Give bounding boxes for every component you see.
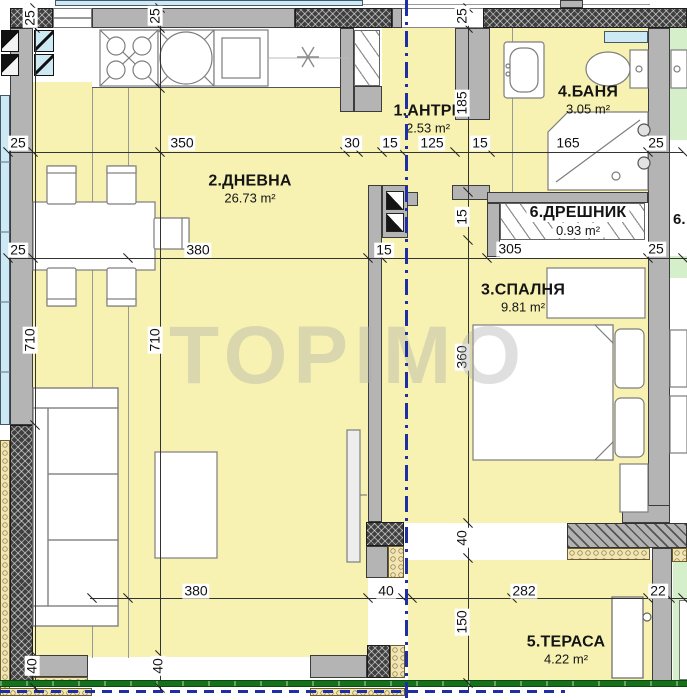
dimension-label: 15 xyxy=(380,136,400,151)
sofa xyxy=(33,388,118,626)
room-label-dreshnik: 6.ДРЕШНИК 0.93 m² xyxy=(524,204,633,240)
dimension-label: 30 xyxy=(342,136,362,151)
shower-cabin xyxy=(548,112,650,190)
dimension-label: 25 xyxy=(8,243,28,258)
freezer-star-icon xyxy=(268,47,350,67)
neighbor-fixtures xyxy=(670,50,687,453)
dimension-label: 150 xyxy=(455,608,470,635)
room-name: 3.СПАЛНЯ xyxy=(481,282,565,300)
dimension-label: 282 xyxy=(510,584,537,599)
floor-plan: TOPIMO 1.АНТРЕ 2.53 m² 2.ДНЕВНА 26.73 m²… xyxy=(0,0,687,700)
section-line-vertical xyxy=(405,0,408,700)
dimension-label: 25 xyxy=(148,6,163,26)
dim-line xyxy=(8,258,687,259)
dimension-label: 40 xyxy=(455,528,470,548)
kitchen-sink xyxy=(158,30,214,86)
tv-unit xyxy=(347,430,367,562)
terrace-door xyxy=(612,597,651,678)
dimension-label: 25 xyxy=(455,6,470,26)
dimension-label: 15 xyxy=(455,207,470,227)
dimension-label: 305 xyxy=(496,242,523,257)
room-area: 3.05 m² xyxy=(558,102,618,117)
fridge xyxy=(214,30,268,86)
room-area: 2.53 m² xyxy=(394,121,463,136)
dimension-label: 40 xyxy=(151,656,166,676)
dimension-label: 25 xyxy=(646,242,666,257)
dimension-label: 15 xyxy=(470,136,490,151)
room-label-banya: 4.БАНЯ 3.05 m² xyxy=(558,84,618,117)
dimension-label: 710 xyxy=(148,326,163,353)
toilet xyxy=(586,50,648,88)
dimension-label: 25 xyxy=(23,8,38,28)
room-name: 6.ДРЕШНИК xyxy=(527,204,630,222)
dimension-label: 380 xyxy=(182,584,209,599)
section-line-horizontal xyxy=(0,690,565,693)
room-name: 5.ТЕРАСА xyxy=(527,634,606,652)
dining-table xyxy=(33,202,155,270)
dimension-label: 710 xyxy=(23,326,38,353)
dimension-label: 165 xyxy=(554,136,581,151)
neighbor-room-label: 6. xyxy=(673,211,686,228)
dimension-label: 22 xyxy=(648,584,668,599)
room-area: 0.93 m² xyxy=(553,223,603,238)
nightstand xyxy=(620,464,648,512)
dimension-label: 25 xyxy=(646,136,666,151)
dimension-label: 350 xyxy=(168,136,195,151)
dimension-label: 125 xyxy=(418,136,445,151)
dimension-label: 380 xyxy=(184,243,211,258)
dimension-label: 40 xyxy=(376,584,396,599)
bath-sink xyxy=(504,42,544,98)
stove xyxy=(100,30,158,86)
room-label-dnevna: 2.ДНЕВНА 26.73 m² xyxy=(208,173,291,206)
room-name: 1.АНТРЕ xyxy=(394,103,463,121)
window-mullions xyxy=(0,162,10,372)
room-area: 4.22 m² xyxy=(527,652,606,667)
room-area: 26.73 m² xyxy=(208,191,291,206)
dimension-label: 40 xyxy=(25,656,40,676)
dimension-label: 185 xyxy=(455,89,470,116)
room-name: 2.ДНЕВНА xyxy=(208,173,291,191)
dimension-label: 15 xyxy=(374,243,394,258)
room-label-antre: 1.АНТРЕ 2.53 m² xyxy=(394,103,463,136)
room-label-terasa: 5.ТЕРАСА 4.22 m² xyxy=(527,634,606,667)
coffee-table xyxy=(155,452,217,558)
watermark: TOPIMO xyxy=(169,309,527,403)
room-name: 4.БАНЯ xyxy=(558,84,618,102)
dimension-label: 25 xyxy=(8,136,28,151)
terrace-railing xyxy=(0,680,687,687)
